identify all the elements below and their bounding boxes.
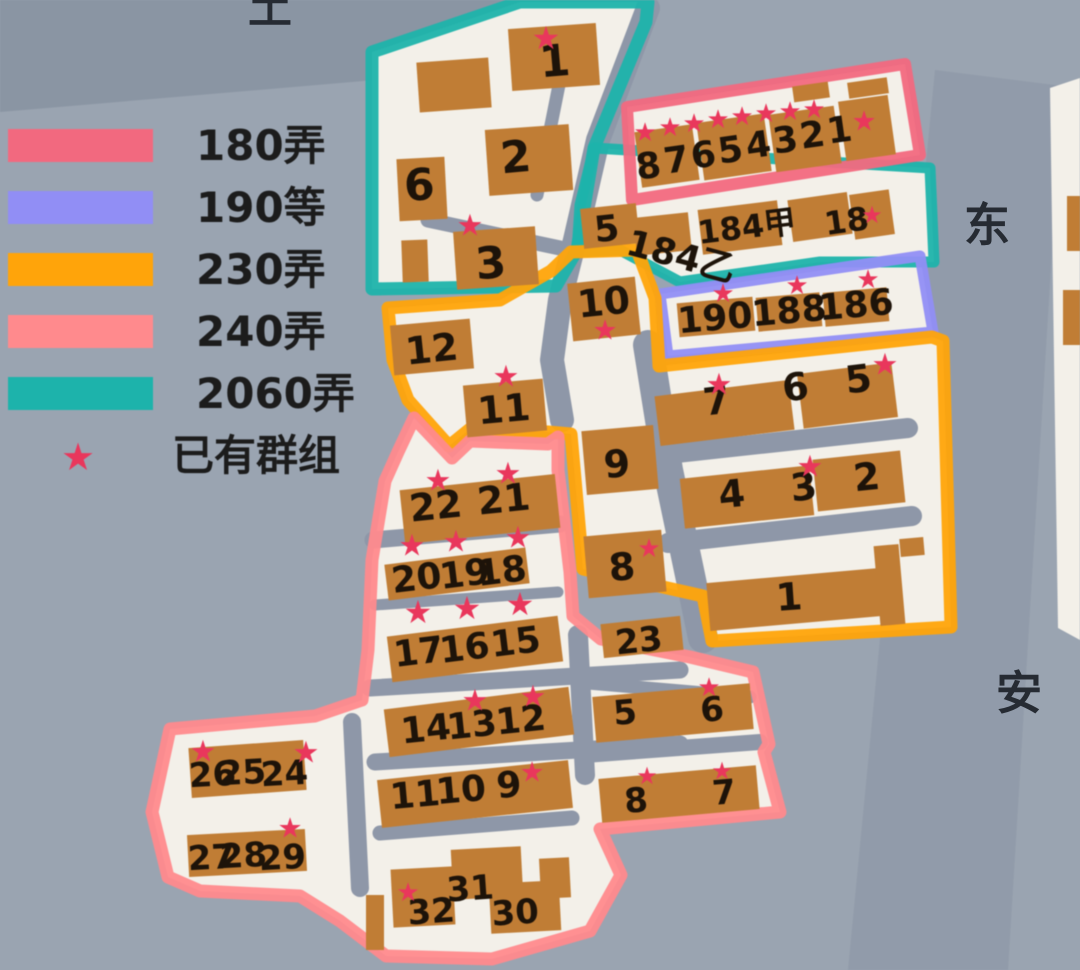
group-star-icon: ★ (682, 109, 705, 139)
group-star-icon: ★ (404, 593, 433, 631)
legend-label: 180弄 (196, 121, 326, 170)
group-star-icon: ★ (658, 113, 681, 143)
group-star-icon: ★ (754, 99, 777, 129)
legend-star-label: 已有群组 (172, 431, 340, 480)
group-star-icon: ★ (706, 105, 729, 135)
group-star-icon: ★ (493, 360, 520, 395)
group-star-icon: ★ (802, 95, 825, 125)
group-star-icon: ★ (778, 97, 801, 127)
building-number: 5 (843, 356, 875, 403)
group-star-icon: ★ (711, 279, 734, 309)
building-number: 12 (403, 324, 460, 373)
group-star-icon: ★ (697, 673, 720, 703)
group-star-icon: ★ (637, 534, 660, 564)
group-star-icon: ★ (495, 457, 522, 492)
legend-label: 190等 (196, 183, 326, 232)
group-star-icon: ★ (453, 589, 482, 627)
group-star-icon: ★ (592, 314, 617, 347)
road (352, 722, 360, 888)
building-number: 8 (607, 544, 637, 590)
building (1063, 290, 1080, 345)
street-label-dong: 东 (964, 202, 1010, 248)
group-star-icon: ★ (785, 271, 808, 301)
group-star-icon: ★ (706, 368, 733, 403)
group-star-icon: ★ (506, 585, 535, 623)
street-label-an: 安 (996, 670, 1042, 716)
group-star-icon: ★ (399, 529, 426, 564)
building-number: 6 (403, 159, 436, 212)
group-star-icon: ★ (532, 19, 561, 57)
group-star-icon: ★ (797, 450, 824, 485)
legend-star-icon: ★ (61, 435, 95, 479)
legend-swatch-240弄 (8, 315, 153, 348)
building (1067, 196, 1080, 251)
group-star-icon: ★ (861, 201, 883, 229)
group-star-icon: ★ (519, 756, 544, 789)
legend-swatch-2060弄 (8, 377, 153, 410)
building (401, 240, 428, 283)
group-star-icon: ★ (851, 105, 876, 138)
building (366, 895, 384, 950)
building-number: 23 (613, 619, 664, 664)
group-star-icon: ★ (730, 102, 753, 132)
lane-map-photo: 1263510876543211901881867654321982312112… (0, 0, 1080, 970)
group-star-icon: ★ (633, 118, 656, 148)
group-star-icon: ★ (856, 265, 879, 295)
building-number: 15 (488, 619, 543, 666)
building-number: 5 (612, 692, 639, 734)
building-number: 2 (498, 131, 533, 184)
legend-swatch-230弄 (8, 253, 153, 286)
building-number: 10 (434, 768, 487, 813)
building-number: 4 (716, 471, 747, 518)
legend-label: 240弄 (196, 307, 326, 356)
group-star-icon: ★ (443, 525, 470, 560)
group-star-icon: ★ (277, 812, 302, 845)
group-star-icon: ★ (636, 762, 658, 790)
group-star-icon: ★ (457, 209, 484, 244)
building-number: 11 (388, 773, 441, 818)
building (416, 58, 491, 113)
map-canvas: 1263510876543211901881867654321982312112… (0, 0, 1080, 970)
group-star-icon: ★ (872, 348, 899, 383)
group-star-icon: ★ (190, 735, 217, 770)
street-label-tu: 土 (248, 0, 292, 30)
group-star-icon: ★ (520, 680, 547, 715)
building-number: 5 (592, 208, 621, 251)
legend-label: 230弄 (196, 245, 326, 294)
group-star-icon: ★ (293, 736, 320, 771)
building-number: 1 (774, 574, 803, 620)
legend-swatch-180弄 (8, 129, 153, 162)
building-number: 6 (780, 364, 812, 411)
group-star-icon: ★ (462, 684, 489, 719)
building-number: 9 (602, 441, 632, 487)
building-number: 2 (851, 454, 882, 501)
group-star-icon: ★ (425, 464, 452, 499)
building-number: 16 (437, 625, 492, 672)
building-number: 3 (473, 237, 508, 290)
legend-label: 2060弄 (196, 369, 355, 418)
building (899, 537, 924, 557)
building-number: 30 (490, 891, 540, 934)
building (539, 857, 571, 899)
legend-swatch-190等 (8, 191, 153, 224)
group-star-icon: ★ (396, 878, 419, 908)
group-star-icon: ★ (711, 757, 733, 785)
group-star-icon: ★ (505, 521, 532, 556)
